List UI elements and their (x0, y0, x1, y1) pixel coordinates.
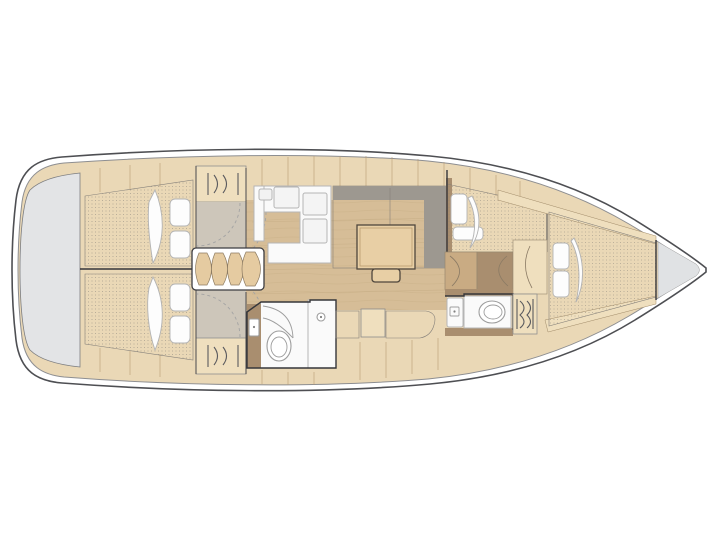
fwd-shelf (513, 240, 547, 294)
aft-head (247, 300, 336, 368)
fwd-head-floorwall (445, 328, 513, 336)
aft-head-vanity (308, 300, 336, 368)
aft-port-pillow-2 (170, 231, 190, 258)
settee-table (361, 309, 385, 337)
floorplan-svg (0, 0, 720, 540)
fwd-dresser-left (445, 252, 477, 290)
dinette-stool (372, 269, 400, 282)
fwd-toilet (479, 301, 505, 323)
galley-sink-small (259, 189, 272, 200)
vestibule-bottom (196, 290, 246, 338)
aft-port-pillow-1 (170, 199, 190, 226)
fwd-head-sink-unit (447, 298, 463, 327)
fwd-port-pillow-1 (451, 194, 467, 224)
aft-head-sink-drain (253, 326, 255, 328)
galley-sink-large (274, 187, 299, 208)
galley-stove-bottom (303, 219, 327, 243)
galley-stove-top (303, 193, 327, 215)
boat-floorplan (0, 0, 720, 540)
forward-head (445, 289, 537, 336)
vestibule-top (196, 202, 246, 250)
dinette-table (357, 225, 415, 269)
fwd-dresser-right (477, 252, 513, 290)
bow-pillow-2 (553, 271, 569, 297)
dinette-sofa-end (424, 186, 448, 268)
swim-platform (20, 173, 80, 367)
aft-stbd-pillow-1 (170, 284, 190, 311)
fwd-head-sink-drain (453, 310, 455, 312)
bow-pillow-1 (553, 243, 569, 269)
fwd-head-wall-top (445, 289, 513, 296)
aft-stbd-pillow-2 (170, 316, 190, 343)
vanity-drain (320, 316, 322, 318)
